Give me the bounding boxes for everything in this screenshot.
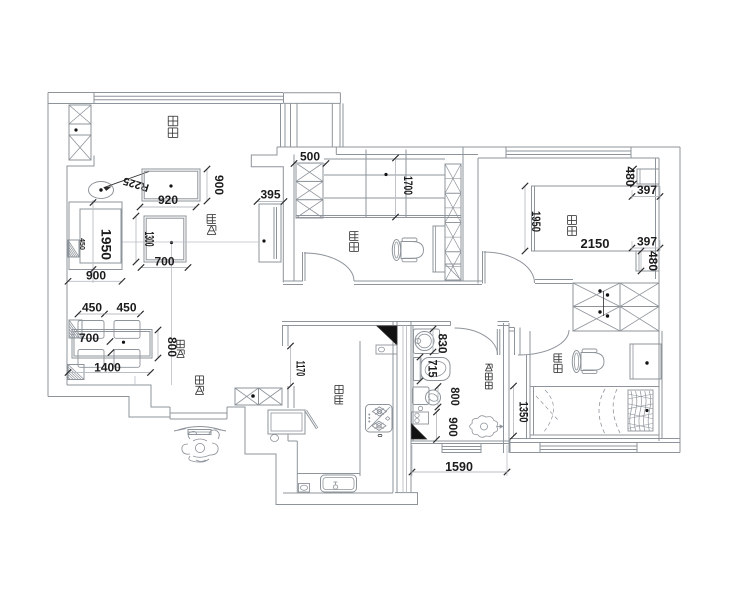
svg-text:450: 450 [78, 238, 85, 250]
svg-text:1700: 1700 [401, 176, 415, 195]
svg-text:920: 920 [158, 193, 178, 207]
svg-text:800: 800 [448, 387, 462, 406]
svg-text:700: 700 [79, 331, 99, 345]
svg-text:1400: 1400 [94, 361, 121, 375]
svg-text:480: 480 [623, 166, 637, 186]
svg-text:397: 397 [637, 183, 657, 197]
svg-text:500: 500 [300, 150, 320, 164]
svg-text:1950: 1950 [529, 211, 543, 232]
svg-text:1300: 1300 [142, 232, 157, 247]
svg-text:900: 900 [212, 175, 226, 195]
svg-text:397: 397 [637, 235, 657, 249]
svg-text:480: 480 [646, 251, 660, 271]
svg-text:900: 900 [86, 269, 106, 283]
svg-text:2150: 2150 [581, 236, 610, 251]
svg-text:1350: 1350 [517, 402, 531, 423]
svg-text:1950: 1950 [99, 229, 115, 260]
svg-text:1590: 1590 [445, 460, 473, 474]
svg-text:395: 395 [260, 188, 280, 202]
svg-text:830: 830 [436, 334, 450, 354]
svg-text:715: 715 [426, 360, 440, 378]
svg-text:700: 700 [154, 255, 174, 269]
svg-text:1170: 1170 [294, 361, 308, 377]
svg-text:450: 450 [116, 301, 136, 315]
svg-text:450: 450 [82, 301, 102, 315]
svg-text:900: 900 [446, 417, 460, 437]
